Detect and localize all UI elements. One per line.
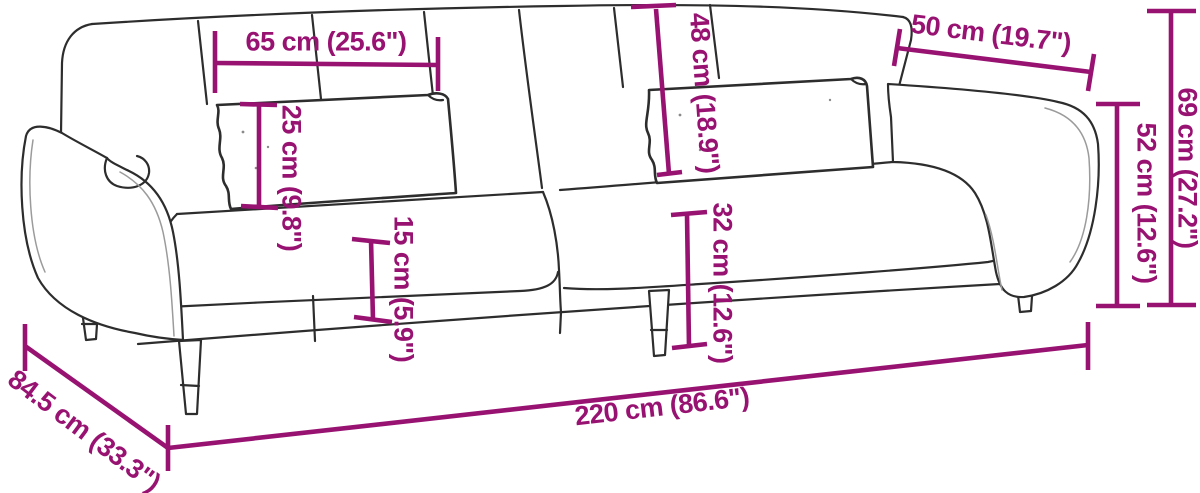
sofa-pillow-left xyxy=(217,93,456,209)
dimension-line-32cm xyxy=(671,212,707,348)
dimension-label-25cm: 25 cm (9.8") xyxy=(278,105,305,251)
dimension-label-15cm: 15 cm (5.9") xyxy=(390,216,417,362)
dimension-label-32cm: 32 cm (12.6") xyxy=(709,203,736,364)
sofa-armrest-left xyxy=(22,127,183,340)
dimension-label-52cm: 52 cm (12.6") xyxy=(1133,123,1160,284)
dimension-label-65cm: 65 cm (25.6") xyxy=(246,29,407,56)
sofa-pillow-right xyxy=(646,78,873,183)
dimension-line-15cm xyxy=(352,239,392,322)
dimension-label-69cm: 69 cm (27.2") xyxy=(1174,88,1200,249)
sofa-dimension-diagram: 65 cm (25.6") 48 cm (18.9") 50 cm (19.7"… xyxy=(0,0,1200,493)
sofa-armrest-right xyxy=(888,84,1099,297)
